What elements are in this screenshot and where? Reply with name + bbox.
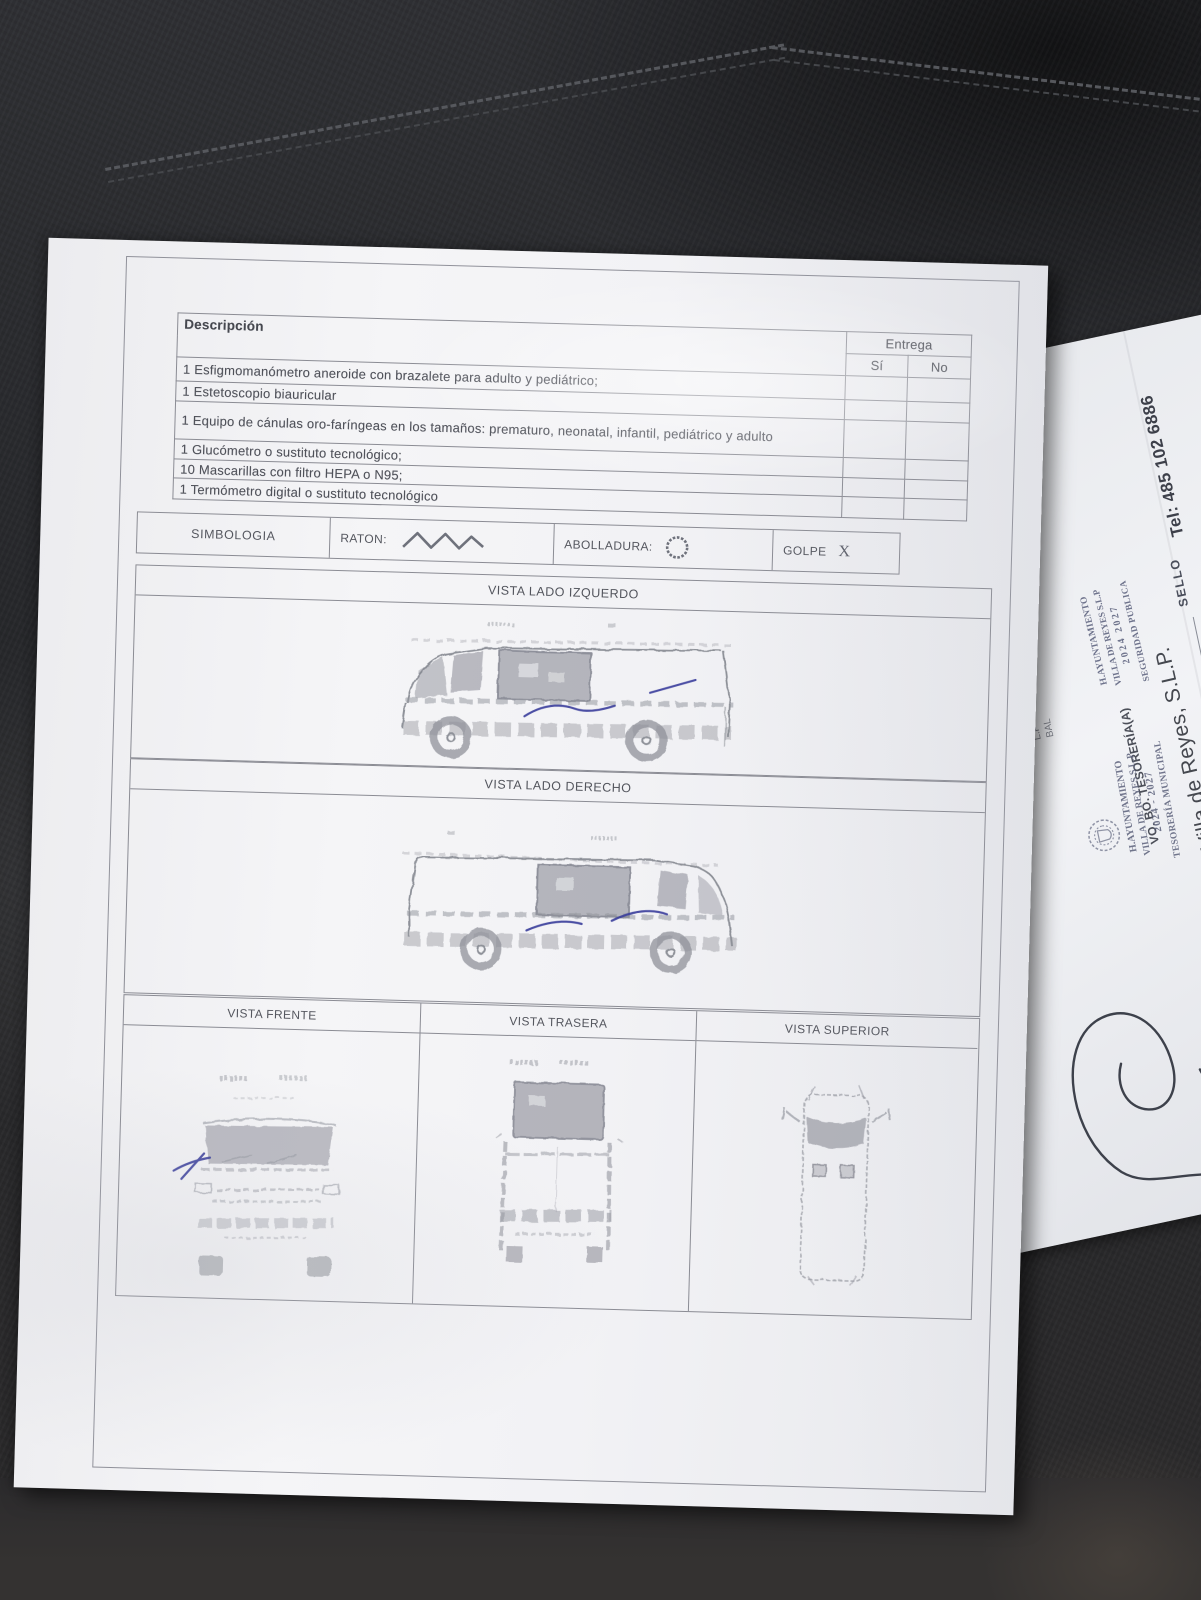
entrega-no-cell (904, 479, 967, 500)
equipment-table: Descripción Entrega Sí No 1 Esfigmomanóm… (172, 312, 972, 521)
van-left-side-drawing (386, 607, 760, 769)
hit-legend: GOLPE X (773, 530, 897, 573)
phone-number: Tel: 485 102 6886 (1137, 393, 1189, 538)
left-side-view-drawing-area (131, 595, 990, 781)
rear-view-cell: VISTA TRASERA (413, 1003, 697, 1311)
entrega-yes-header: Sí (846, 354, 909, 378)
front-view-cell: VISTA FRENTE (116, 995, 421, 1303)
dent-legend: ABOLLADURA: (554, 524, 774, 570)
entrega-no-header: No (908, 355, 972, 379)
entrega-si-cell (843, 458, 905, 480)
rear-view-drawing-area (413, 1033, 695, 1311)
right-side-view-panel: VISTA LADO DERECHO (124, 758, 987, 1017)
scratch-label: RATON: (340, 531, 387, 546)
top-view-drawing-area (689, 1041, 977, 1319)
entrega-si-cell (843, 420, 906, 460)
top-view-cell: VISTA SUPERIOR (689, 1011, 978, 1319)
entrega-si-cell (844, 400, 906, 422)
stamp-seguridad-publica: H.AYUNTAMIENTO VILLA DE REYES S.L.P 2024… (1075, 575, 1155, 697)
main-document-sheet: Descripción Entrega Sí No 1 Esfigmomanóm… (14, 238, 1049, 1515)
van-rear-drawing (453, 1047, 655, 1292)
hit-symbol-icon: X (838, 543, 850, 561)
entrega-no-cell (905, 421, 969, 461)
entrega-si-cell (842, 478, 904, 499)
form-outer-border: Descripción Entrega Sí No 1 Esfigmomanóm… (92, 256, 1019, 1492)
van-top-drawing (751, 1063, 922, 1298)
right-side-view-drawing-area (125, 789, 985, 1016)
three-view-panel: VISTA FRENTE (115, 994, 980, 1320)
entrega-si-cell (845, 376, 908, 402)
municipal-crest-icon (1082, 813, 1127, 858)
sello-label: SELLO (1167, 557, 1191, 608)
entrega-no-cell (906, 401, 970, 423)
entrega-no-cell (905, 459, 969, 481)
left-side-view-panel: VISTA LADO IZQUERDO (130, 564, 992, 782)
scratch-legend: RATON: (330, 518, 555, 564)
entrega-no-cell (907, 377, 971, 403)
symbology-legend: SIMBOLOGIA RATON: ABOLLADURA: GOLPE X (136, 511, 901, 574)
scratch-symbol-icon (399, 529, 490, 554)
dent-symbol-icon (664, 534, 691, 561)
entrega-no-cell (904, 498, 968, 521)
van-front-drawing (168, 1065, 369, 1295)
front-view-drawing-area (116, 1025, 419, 1303)
photo-of-document: L.P BAL H.AYUNTAMIENTO VILLA DE REYES S.… (0, 0, 1201, 1600)
entrega-si-cell (842, 497, 904, 520)
symbology-title: SIMBOLOGIA (137, 512, 331, 557)
pen-mark (173, 1153, 210, 1180)
handwritten-signature (1021, 938, 1201, 1227)
van-right-side-drawing (383, 814, 759, 989)
dent-label: ABOLLADURA: (564, 537, 653, 553)
hit-label: GOLPE (783, 543, 827, 558)
